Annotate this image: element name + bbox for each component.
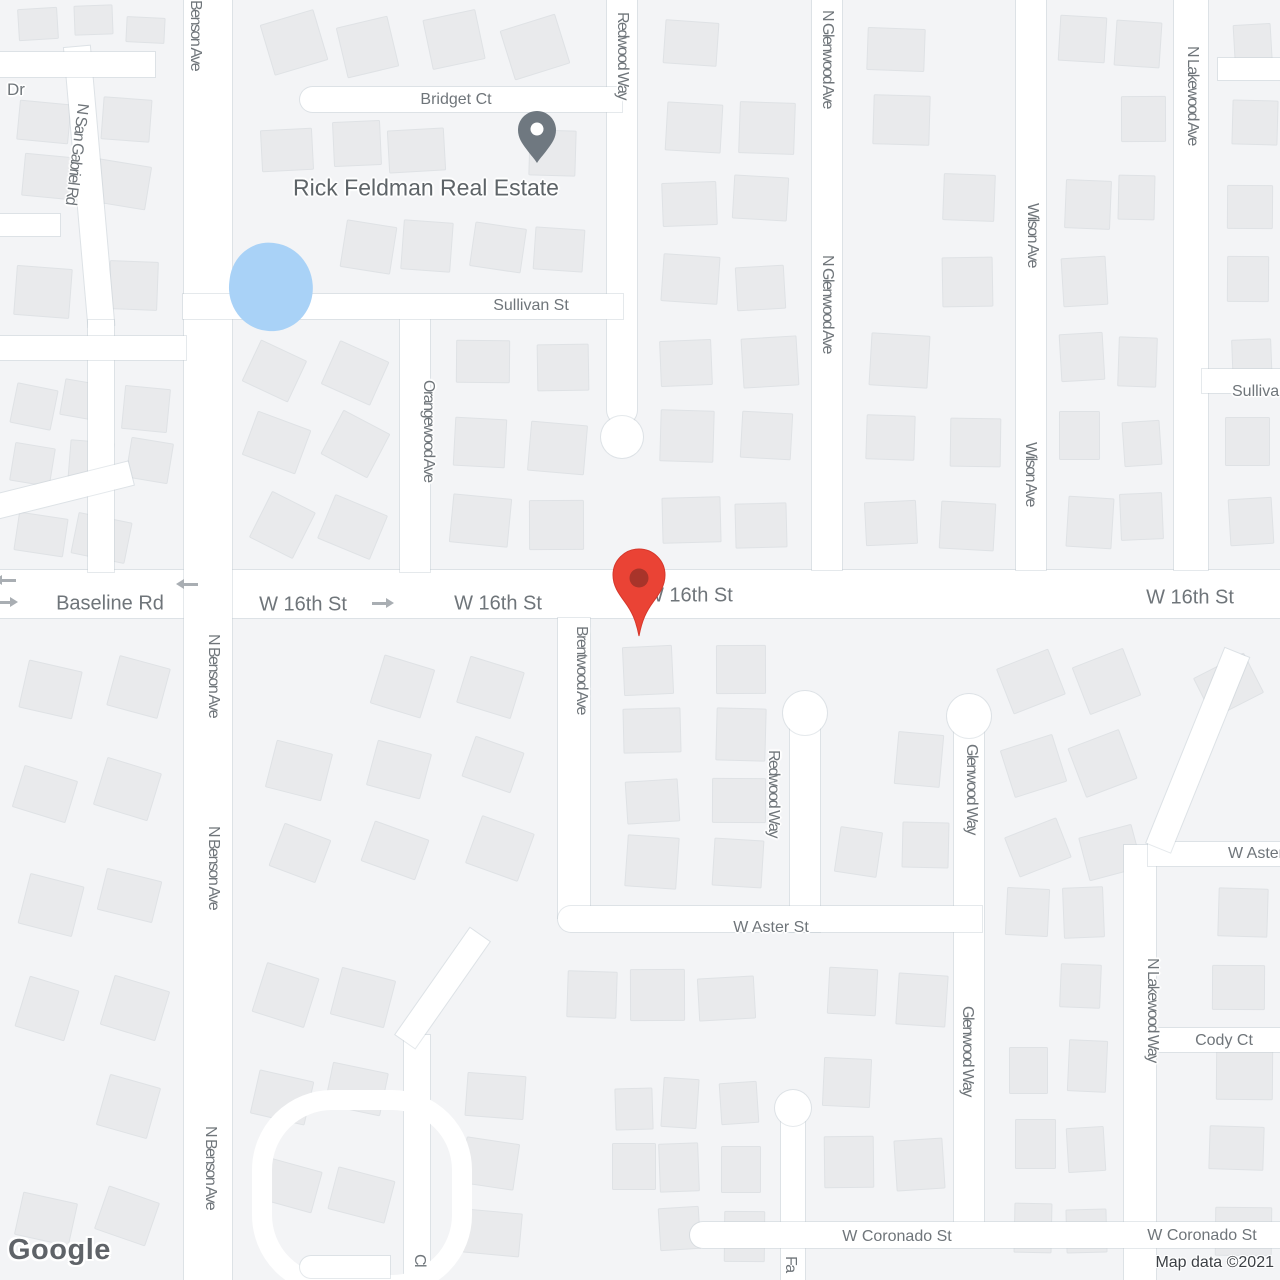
building [824,1136,875,1188]
street-label: Cody Ct [1195,1032,1253,1050]
building [9,442,56,487]
road-stub [300,1256,390,1278]
building [942,173,996,222]
pond [224,238,318,336]
street-label: Baseline Rd [56,593,164,616]
building [1228,497,1275,547]
building [320,410,390,478]
building [465,815,535,882]
road-culdesac [947,694,991,738]
street-label: W 16th St [259,594,347,617]
building [1117,336,1157,388]
building [9,382,58,431]
building [320,340,389,406]
street-label: Redwood Way [613,12,631,99]
building [718,1081,759,1126]
building [663,20,720,68]
building [269,822,332,882]
building [1064,179,1112,230]
building [1060,963,1103,1009]
building [1009,1047,1048,1094]
building [1215,1048,1272,1100]
building [387,127,446,173]
street-label: W Aster St [733,919,809,937]
building [732,174,789,221]
building [661,181,717,227]
street-label: Bridget Ct [420,91,491,109]
building [456,656,525,719]
building [740,411,793,460]
building [895,972,948,1027]
building [658,1142,700,1192]
one-way-arrow-left-icon [2,579,16,582]
building [335,16,399,79]
building [659,339,713,387]
building [893,1138,945,1192]
building [894,731,945,788]
building [1232,99,1279,146]
building [332,119,382,166]
building [100,975,170,1041]
building [1004,818,1072,879]
building [624,779,679,826]
road-culdesac [783,691,827,735]
road-redwood-way-s [790,706,820,932]
building [423,9,487,70]
street-label: N Benson Ave [204,826,222,909]
building [697,976,757,1022]
gray-map-pin-icon[interactable] [517,110,557,169]
street-label: Orangewood Ave [419,380,437,481]
building [241,411,311,475]
building [1066,1126,1107,1173]
building [950,418,1002,468]
building [864,499,919,546]
building [339,219,397,274]
building [106,655,171,719]
building [108,260,159,310]
building [621,645,673,696]
building [464,1072,526,1120]
building [834,826,883,877]
road-culdesac [601,416,643,458]
street-label: N Glenwood Ave [818,255,836,353]
building [716,707,768,761]
map-attribution: Map data ©2021 [1155,1254,1274,1272]
poi-label[interactable]: Rick Feldman Real Estate [293,175,559,202]
building [735,264,787,310]
building [96,1073,161,1138]
street-label: Wilson Ave [1021,442,1039,506]
building [822,1057,873,1108]
building [1208,1126,1264,1172]
street-label: Wilson Ave [1023,203,1041,267]
building [1061,256,1109,308]
road-small [0,336,186,360]
building [1057,15,1106,64]
street-label: Fa [781,1256,799,1272]
building [242,340,307,403]
building [1058,331,1105,382]
building [1072,648,1141,715]
building [401,219,454,272]
road-fa-street [781,1102,805,1280]
building [1122,420,1163,468]
building [1059,411,1100,460]
building [74,4,115,35]
building [660,410,715,463]
building [1005,887,1050,937]
building [1014,1119,1055,1169]
building [18,659,83,719]
building [259,9,327,75]
building [126,16,166,44]
building [455,340,509,384]
building [1121,96,1166,142]
building [93,757,162,821]
building [317,494,388,560]
building [1113,20,1161,69]
building [260,127,314,172]
building [529,500,584,550]
building [716,645,766,694]
building [17,7,59,41]
building [735,502,788,549]
building [361,821,430,881]
one-way-arrow-left-icon [184,583,198,586]
building [121,385,171,433]
building [612,1143,656,1190]
road-loop [252,1090,472,1280]
building [1117,175,1156,220]
building [942,257,994,308]
building [252,962,320,1028]
street-label: Sullivan St [1232,383,1280,401]
building [711,837,763,888]
building [330,967,396,1028]
building [1067,729,1137,798]
building [12,764,78,822]
road-culdesac [775,1090,811,1126]
street-label: N Benson Ave [204,634,222,717]
building [1227,256,1269,302]
street-label: N Lakewood Way [1143,958,1161,1062]
building [721,1146,762,1193]
building [872,94,930,146]
building [461,735,524,793]
building [901,821,949,868]
building [622,707,681,753]
building [14,975,79,1041]
street-label: W 16th St [1146,587,1234,610]
building [13,265,73,319]
street-label: W 16th St [454,593,542,616]
building [1062,886,1105,939]
building [17,99,73,143]
building [1000,734,1067,798]
road-dr [0,52,155,77]
building [661,497,721,544]
street-label: Glenwood Way [962,744,980,834]
building [712,778,766,823]
building [249,490,316,558]
building [630,969,686,1021]
street-label: Glenwood Way [958,1006,976,1096]
street-label: W Coronado St [1147,1227,1256,1245]
building [366,740,432,800]
building [1065,496,1114,549]
building [869,332,931,388]
building [1227,185,1273,229]
building [1225,417,1270,466]
street-label: Dr [7,80,25,100]
street-label: Redwood Way [764,750,782,837]
road-n-lakewood-way [1124,845,1156,1280]
building [738,101,795,155]
street-label: N Glenwood Ave [818,10,836,108]
building [827,967,878,1017]
building [537,343,590,391]
building [469,221,528,274]
building [100,96,152,143]
street-label: N Benson Ave [201,1126,219,1209]
road-small [0,214,60,236]
building [660,253,720,304]
building [567,970,619,1019]
building [1119,492,1164,541]
building [939,500,997,551]
road-stub [1218,58,1280,80]
building [867,27,927,72]
building [1218,887,1269,938]
building [614,1087,653,1131]
building [453,417,508,469]
building [527,420,588,475]
building [1211,965,1264,1011]
building [18,873,85,938]
street-label: W Aster St [1228,845,1280,863]
street-label: Cl [410,1254,428,1266]
street-label: N Lakewood Ave [1183,46,1201,145]
building [370,654,436,718]
street-label: Brentwood Ave [572,626,590,714]
street-label: Sullivan St [493,297,569,315]
building [13,512,68,558]
building [865,414,916,461]
building [740,335,799,389]
red-map-pin-icon[interactable] [612,548,666,643]
building [499,13,570,80]
building [533,227,586,274]
building [96,868,162,924]
one-way-arrow-right-icon [372,602,386,605]
building [664,102,723,154]
building [265,740,333,802]
street-label: W Coronado St [842,1228,951,1246]
building [624,835,679,890]
street-label: Benson Ave [186,0,204,70]
road-diagonal [395,928,489,1048]
google-logo[interactable]: Google [8,1234,111,1267]
building [1067,1039,1108,1092]
building [996,649,1066,716]
building [449,493,512,547]
one-way-arrow-right-icon [0,601,10,604]
map-canvas[interactable]: Rick Feldman Real Estate Google Map data… [0,0,1280,1280]
building [660,1077,700,1129]
